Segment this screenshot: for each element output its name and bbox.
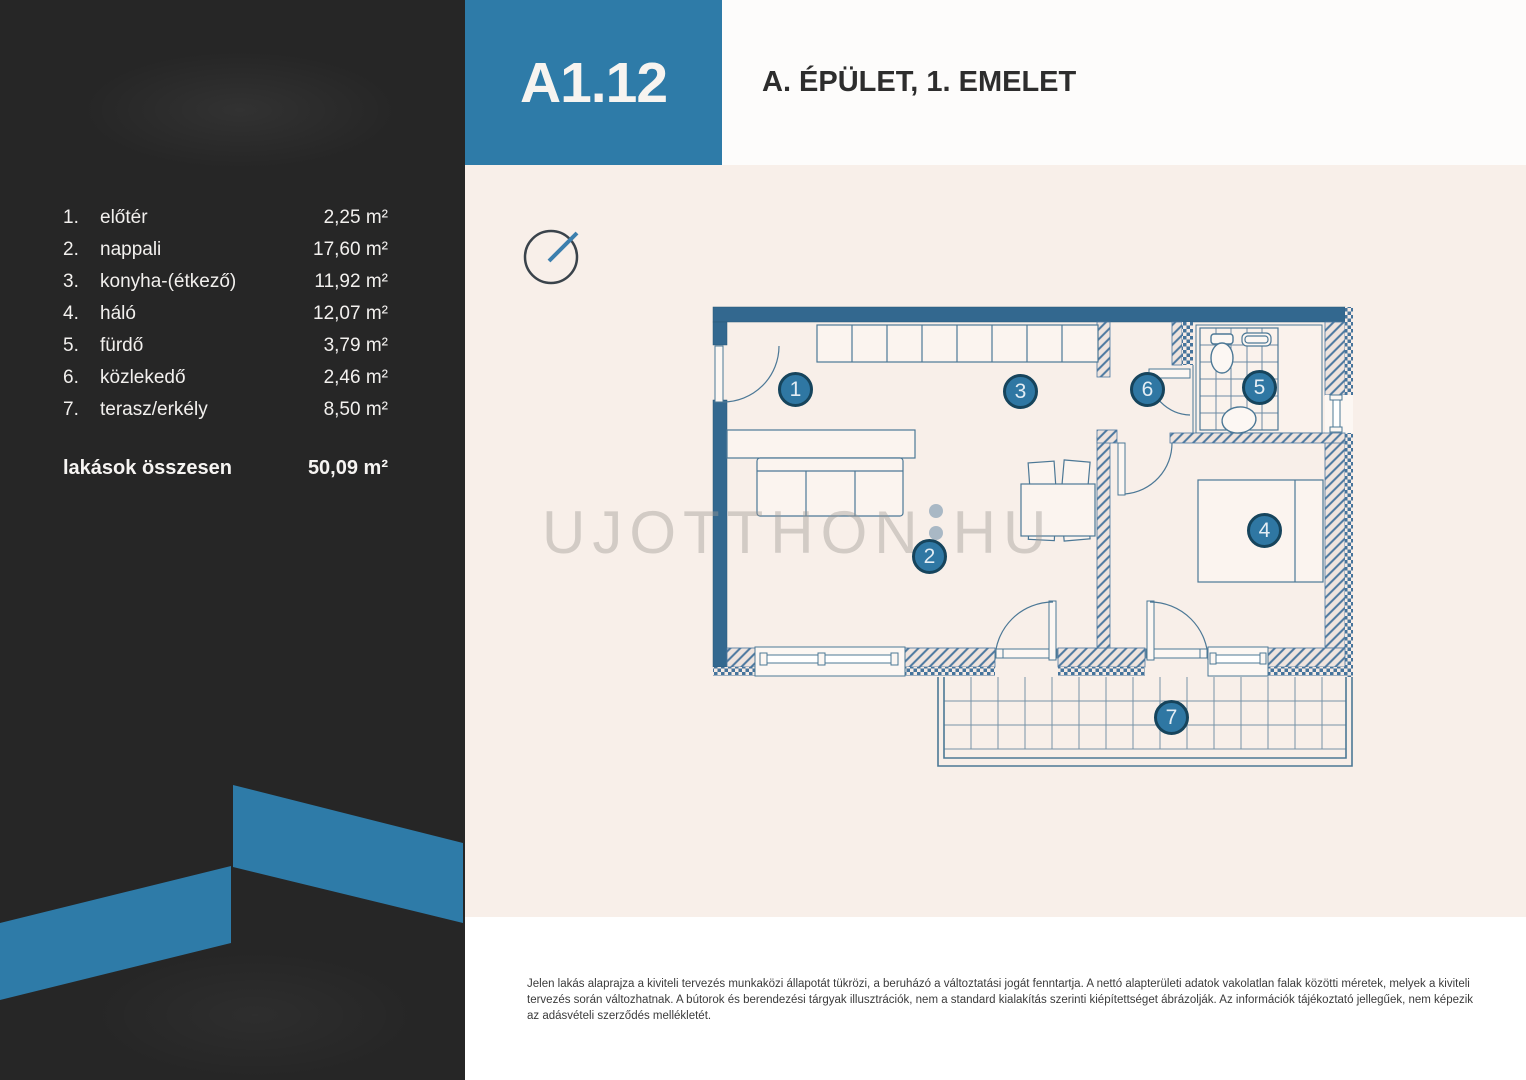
room-list: 1. előtér 2,25 m² 2. nappali 17,60 m² 3.… — [0, 202, 465, 426]
building-floor-label: A. ÉPÜLET, 1. EMELET — [762, 66, 1076, 99]
room-badge-7: 7 — [1154, 700, 1189, 735]
room-area: 17,60 m² — [313, 234, 388, 266]
bedroom-window — [1208, 647, 1268, 676]
room-area: 12,07 m² — [313, 298, 388, 330]
room-number: 4. — [63, 298, 79, 330]
kitchen-counter — [817, 325, 1098, 362]
bottom-wall — [713, 647, 1353, 676]
disclaimer-text: Jelen lakás alaprajza a kiviteli tervezé… — [527, 977, 1475, 1024]
toilet — [1211, 334, 1233, 373]
room-row: 5. fürdő 3,79 m² — [0, 330, 465, 362]
room-badge-3: 3 — [1003, 374, 1038, 409]
unit-code: A1.12 — [520, 50, 667, 116]
living-room-window — [755, 647, 905, 676]
room-name: nappali — [100, 234, 161, 266]
header: A. ÉPÜLET, 1. EMELET — [722, 0, 1526, 165]
room-badge-6: 6 — [1130, 372, 1165, 407]
room-area: 2,46 m² — [324, 362, 388, 394]
sidebar-ghost-footer-logo — [90, 950, 420, 1080]
sidebar-ghost-logo — [80, 50, 400, 170]
total-row: lakások összesen 50,09 m² — [0, 452, 465, 484]
room-badge-4: 4 — [1247, 513, 1282, 548]
room-badge-2: 2 — [912, 539, 947, 574]
total-value: 50,09 m² — [308, 452, 388, 484]
bathroom-shelf — [1242, 333, 1271, 346]
room-area: 8,50 m² — [324, 394, 388, 426]
room-name: terasz/erkély — [100, 394, 208, 426]
room-row: 2. nappali 17,60 m² — [0, 234, 465, 266]
room-name: fürdő — [100, 330, 143, 362]
room-badge-5: 5 — [1242, 370, 1277, 405]
terrace — [938, 677, 1352, 766]
room-number: 6. — [63, 362, 79, 394]
apartment-datasheet: { "header": { "unit_code": "A1.12", "bui… — [0, 0, 1526, 1080]
room-number: 7. — [63, 394, 79, 426]
room-number: 3. — [63, 266, 79, 298]
room-area: 3,79 m² — [324, 330, 388, 362]
room-row: 7. terasz/erkély 8,50 m² — [0, 394, 465, 426]
room-row: 4. háló 12,07 m² — [0, 298, 465, 330]
room-name: közlekedő — [100, 362, 186, 394]
room-area: 11,92 m² — [314, 266, 388, 298]
room-row: 6. közlekedő 2,46 m² — [0, 362, 465, 394]
room-name: előtér — [100, 202, 148, 234]
room-badge-1: 1 — [778, 372, 813, 407]
room-number: 1. — [63, 202, 79, 234]
room-number: 5. — [63, 330, 79, 362]
room-row: 3. konyha-(étkező) 11,92 m² — [0, 266, 465, 298]
room-name: háló — [100, 298, 136, 330]
right-wall — [1325, 307, 1353, 677]
dining-set — [1021, 460, 1095, 541]
sidebar: 1. előtér 2,25 m² 2. nappali 17,60 m² 3.… — [0, 0, 465, 1080]
sofa — [727, 430, 915, 516]
room-row: 1. előtér 2,25 m² — [0, 202, 465, 234]
north-indicator-icon — [515, 220, 605, 310]
bathroom-window — [1325, 395, 1353, 433]
room-name: konyha-(étkező) — [100, 266, 236, 298]
room-number: 2. — [63, 234, 79, 266]
total-label: lakások összesen — [63, 452, 232, 484]
bedroom-door — [1118, 443, 1172, 495]
room-area: 2,25 m² — [324, 202, 388, 234]
entrance-door — [715, 346, 779, 402]
unit-code-box: A1.12 — [465, 0, 722, 165]
footer: Jelen lakás alaprajza a kiviteli tervezé… — [465, 917, 1526, 1080]
